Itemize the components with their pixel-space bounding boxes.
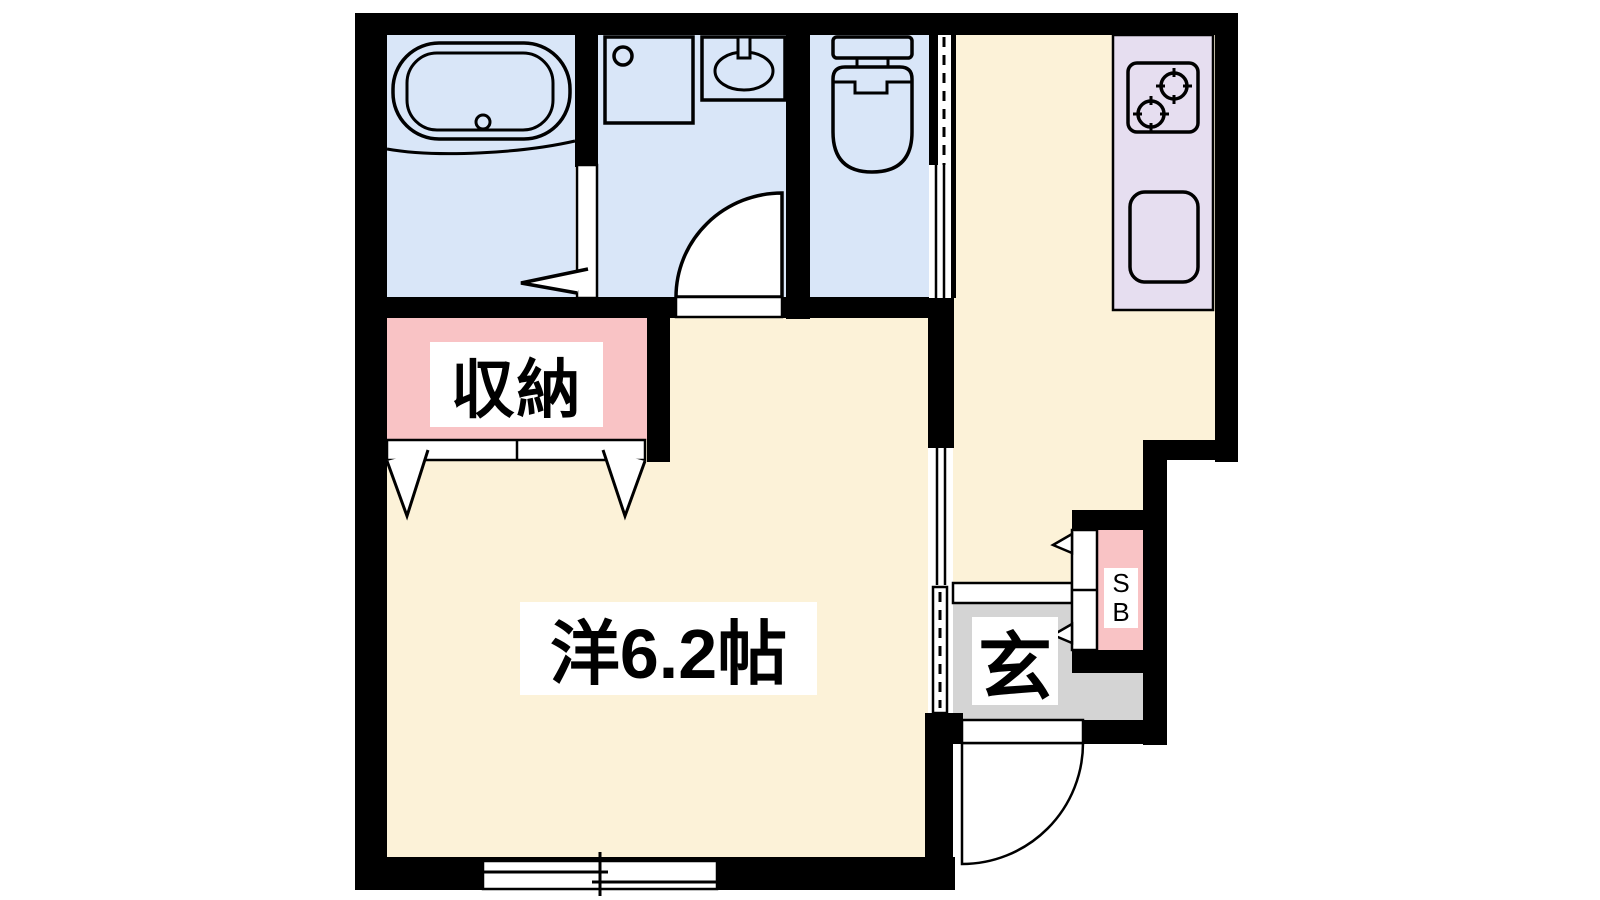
label-main-room: 洋6.2帖 (520, 602, 817, 695)
wall-segment (925, 743, 953, 890)
entrance-step (953, 583, 1072, 603)
wall-segment (647, 297, 670, 462)
kitchen-counter (1113, 35, 1213, 310)
wall-segment (929, 35, 939, 166)
wall-segment (1215, 13, 1238, 462)
wall-segment (355, 297, 677, 318)
wall-segment (786, 35, 810, 319)
wall-segment (1072, 510, 1145, 530)
floor-plan-drawing (0, 0, 1600, 900)
main-room-sliding-door (930, 448, 953, 585)
label-shoe-box-line2: B (1112, 598, 1129, 627)
floor-plan: 収納 洋6.2帖 玄 S B (0, 0, 1600, 900)
label-closet: 収納 (430, 342, 603, 427)
toilet-door (929, 165, 951, 298)
toilet-partition-dashed (938, 35, 951, 165)
room-bathroom (387, 35, 575, 297)
wall-segment (1072, 650, 1145, 673)
entrance-door-swing-icon (962, 720, 1083, 864)
wall-segment (575, 35, 598, 167)
wall-segment (1143, 460, 1167, 745)
label-shoe-box-line1: S (1112, 569, 1129, 598)
wall-segment (355, 13, 387, 890)
wall-segment (928, 317, 954, 448)
label-shoe-box: S B (1104, 568, 1138, 628)
wall-segment (1143, 440, 1238, 460)
wall-segment (925, 713, 963, 744)
wall-segment (782, 297, 954, 318)
wall-segment (951, 35, 956, 298)
entrance-dashed-boundary (933, 587, 947, 713)
wall-segment (355, 13, 1238, 35)
wall-segment (1083, 720, 1167, 744)
label-entrance: 玄 (972, 617, 1058, 705)
